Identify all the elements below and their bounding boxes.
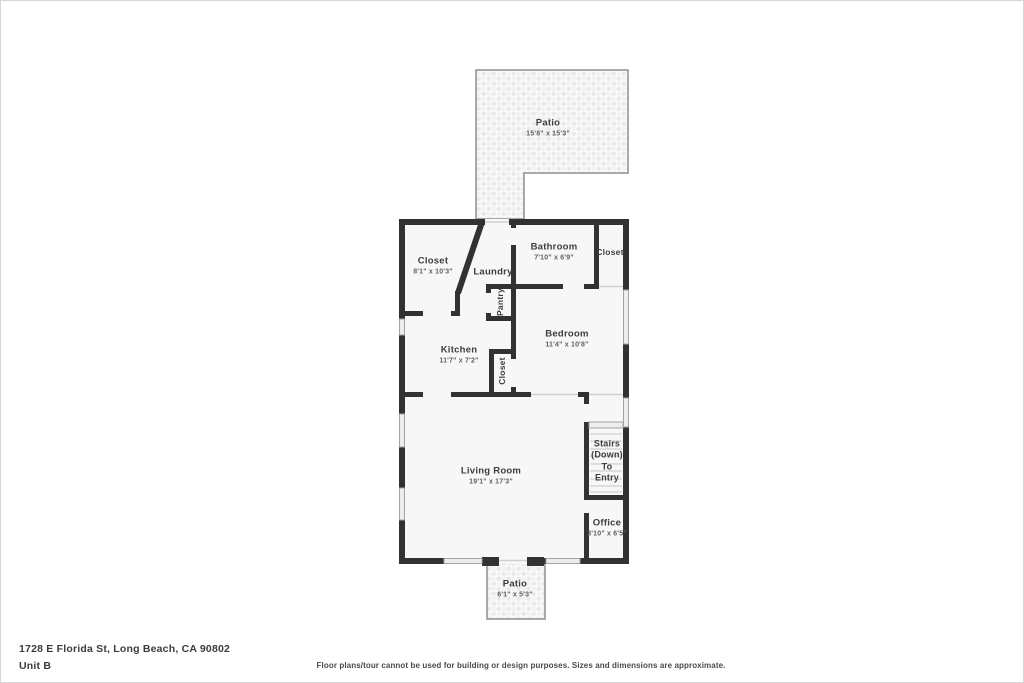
unit-text: Unit B — [19, 660, 51, 672]
floor-plan-page: Patio 15'8" x 15'3" Closet 8'1" x 10'3" … — [0, 0, 1024, 683]
address-text: 1728 E Florida St, Long Beach, CA 90802 — [19, 643, 230, 655]
disclaimer-text: Floor plans/tour cannot be used for buil… — [317, 661, 726, 670]
patio-top-area — [476, 70, 628, 219]
floor-plan-drawing — [1, 1, 1024, 683]
patio-bottom-area — [487, 563, 545, 619]
